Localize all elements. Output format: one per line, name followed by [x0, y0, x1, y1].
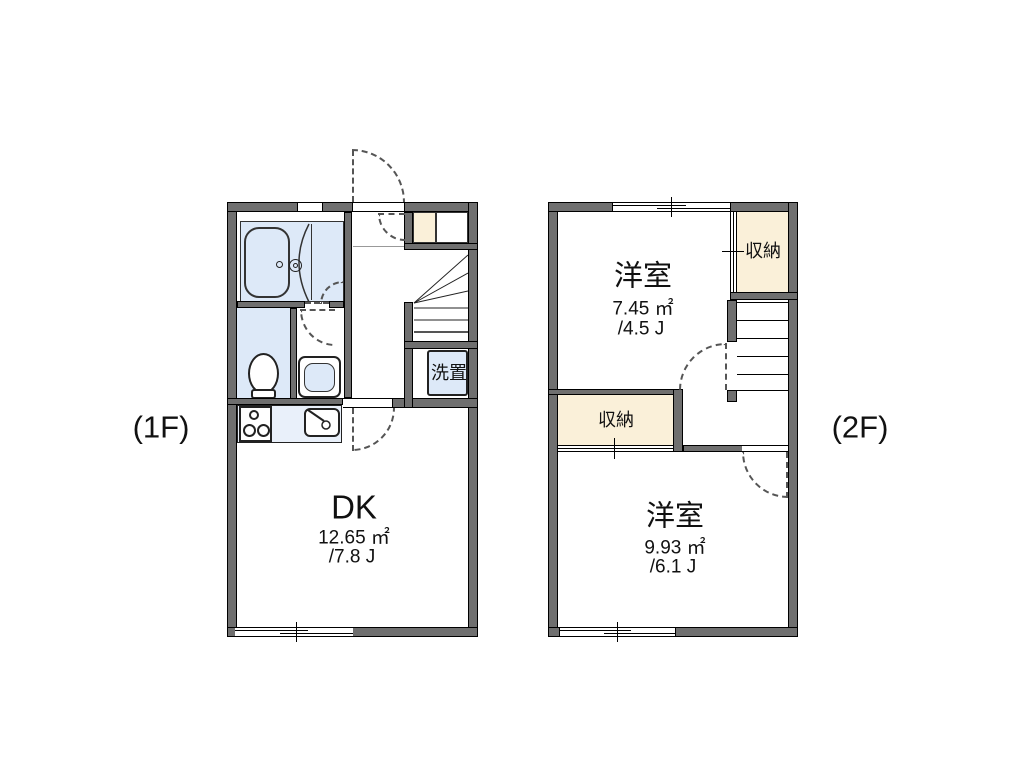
room-bottom-label: 洋室 — [646, 503, 704, 532]
faucet-icon — [306, 408, 338, 434]
dk-room-label: DK — [331, 491, 377, 524]
wall — [727, 300, 737, 342]
staircase-2f-tread — [737, 320, 788, 321]
closet-sliding-door — [558, 445, 673, 452]
staircase-1f — [413, 251, 468, 343]
slider-tick — [722, 251, 744, 252]
wall — [675, 627, 798, 637]
window-tick — [671, 197, 672, 217]
wall — [548, 202, 613, 212]
washbasin-bowl-icon — [304, 363, 335, 392]
room-top-label: 洋室 — [614, 263, 672, 292]
dk-tatami-label: /7.8 J — [329, 548, 375, 567]
window-tick — [296, 622, 297, 642]
staircase-2f-tread — [737, 356, 788, 357]
stove-burner-icon — [249, 410, 259, 420]
floor-label-2f: (2F) — [832, 412, 889, 443]
staircase-2f-tread — [737, 302, 788, 303]
room-top-tatami-label: /4.5 J — [618, 320, 664, 339]
shoe-cabinet — [413, 212, 436, 243]
wall — [548, 202, 558, 637]
closet-top-label: 収納 — [745, 242, 781, 260]
wall — [322, 202, 353, 212]
room-top-area-label: 7.45 ㎡ — [612, 300, 673, 319]
room-bottom-area-label: 9.93 ㎡ — [644, 539, 705, 558]
room-bottom-tatami-label: /6.1 J — [650, 558, 696, 577]
staircase-2f-tread — [737, 338, 788, 339]
wall — [548, 627, 560, 637]
wall — [404, 202, 478, 212]
wall — [344, 212, 352, 398]
entrance-cabinet — [436, 212, 468, 243]
wall — [227, 202, 298, 212]
stove-burner-icon — [257, 424, 270, 437]
bath-faucet-dot-icon — [293, 263, 298, 268]
stove-burner-icon — [243, 424, 256, 437]
washer-label: 洗置 — [431, 364, 467, 382]
wall — [788, 202, 798, 637]
window — [235, 627, 353, 637]
bathtub — [244, 227, 290, 298]
wall — [227, 202, 237, 637]
wall — [730, 292, 798, 300]
closet-sliding-door — [730, 212, 737, 292]
wall — [727, 390, 737, 402]
wall — [404, 341, 478, 349]
wall — [237, 301, 305, 308]
wall — [673, 389, 683, 452]
wall — [404, 302, 413, 408]
small-window — [298, 202, 322, 212]
entrance-door-arc — [352, 149, 405, 202]
dk-area-label: 12.65 ㎡ — [318, 529, 390, 548]
wall — [548, 389, 675, 395]
wall — [227, 398, 343, 405]
entrance-step-line — [353, 246, 404, 247]
staircase-2f-tread — [737, 390, 788, 391]
room-doorway — [742, 445, 788, 452]
closet-mid-label: 収納 — [598, 411, 634, 429]
kitchen-doorway — [343, 398, 392, 408]
wall — [468, 202, 478, 637]
bath-drain-icon — [276, 261, 283, 268]
entrance-threshold — [353, 202, 404, 212]
window-tick — [617, 622, 618, 642]
toilet-icon — [248, 353, 279, 394]
slider-tick — [614, 438, 615, 459]
wall — [290, 308, 297, 402]
wall — [404, 243, 478, 250]
floor-label-1f: (1F) — [133, 412, 190, 443]
floorplan-canvas: 洗置 — [0, 0, 1016, 772]
staircase-2f-tread — [737, 374, 788, 375]
wall — [683, 445, 743, 452]
